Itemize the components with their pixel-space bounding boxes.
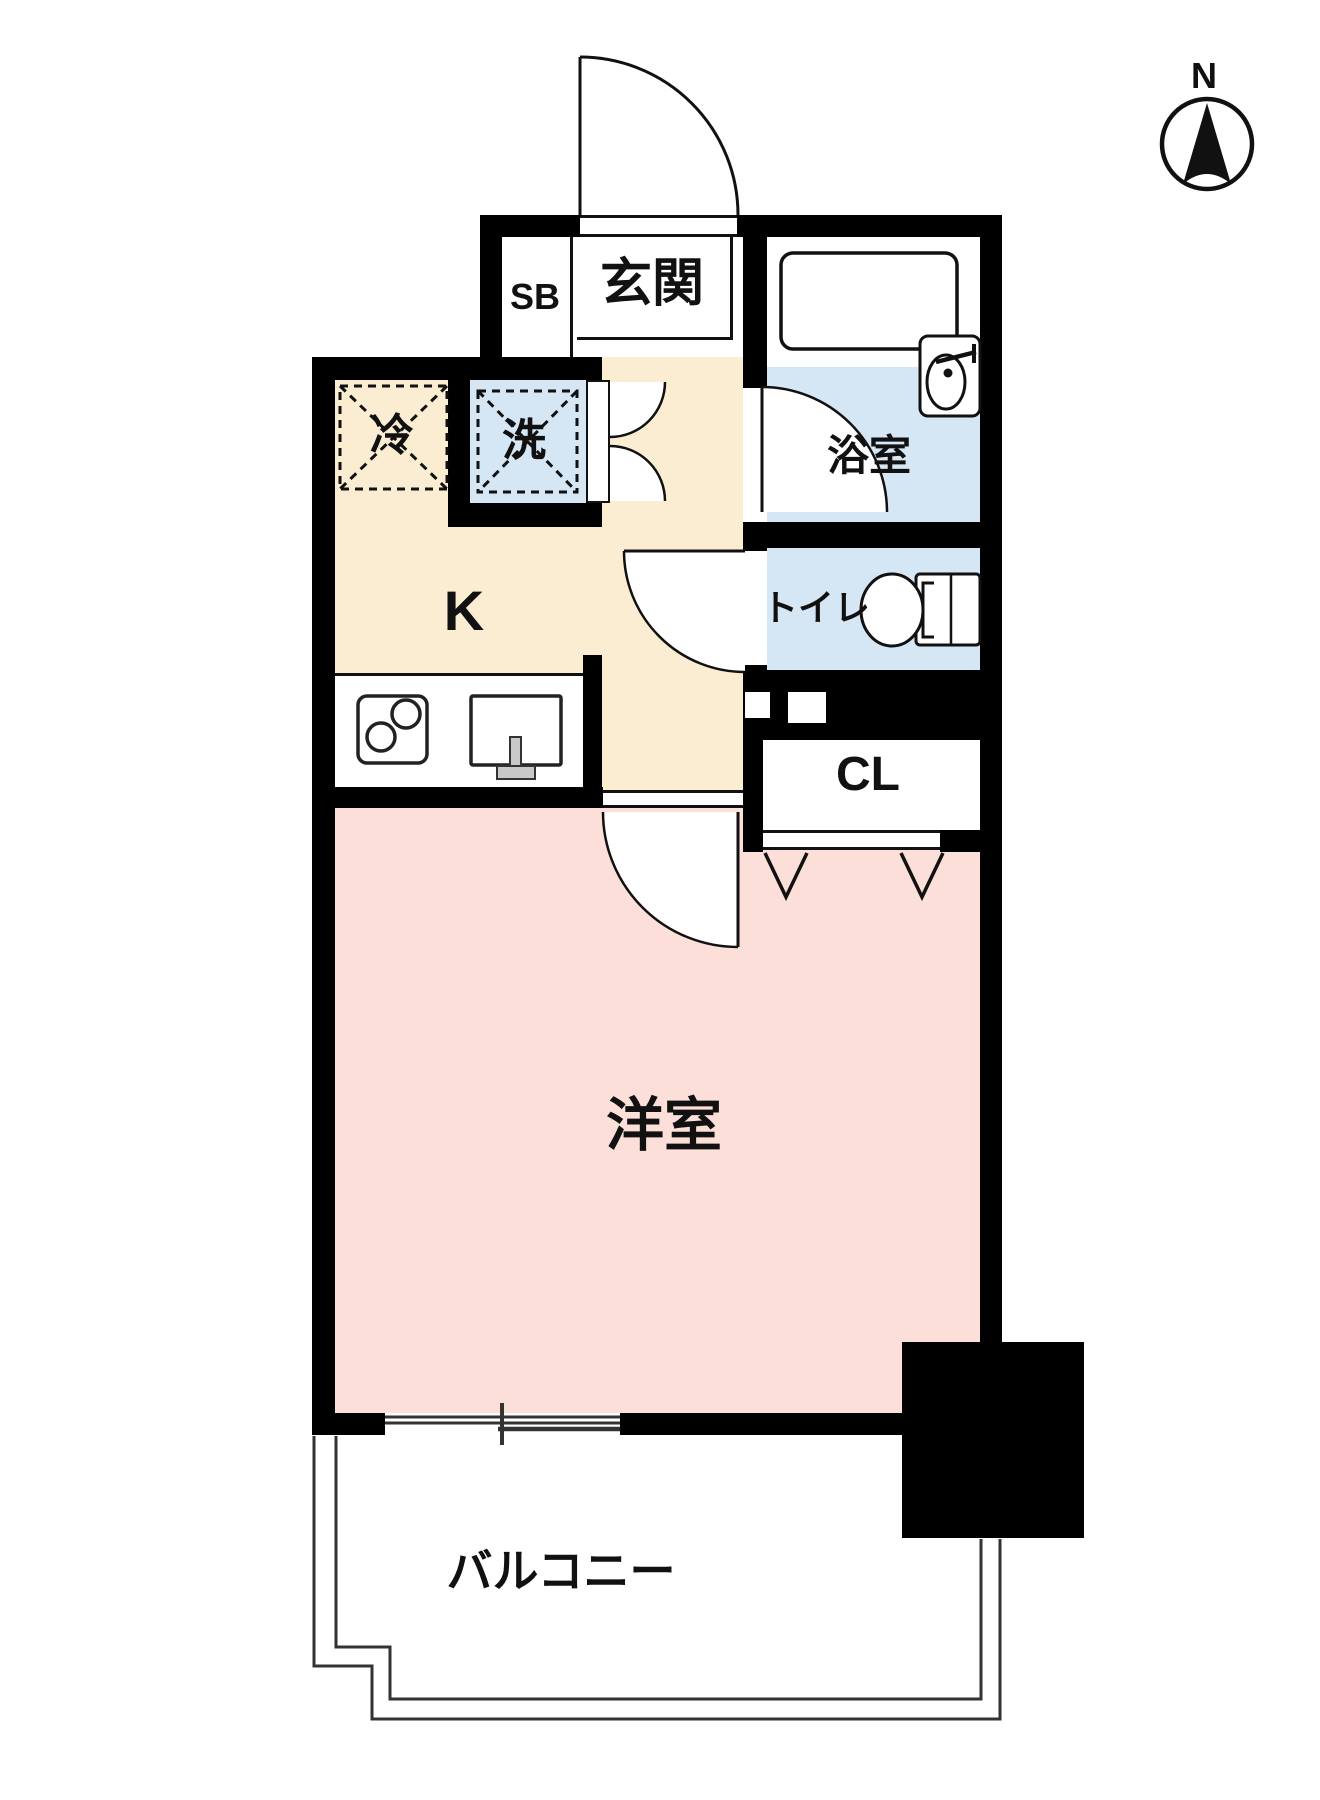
- bath-sink-basin: [927, 355, 965, 409]
- kitchen-label: K: [444, 583, 484, 639]
- shoe-box-label: SB: [510, 279, 560, 315]
- balcony-label: バルコニー: [446, 1548, 675, 1594]
- floor-plan: SB 玄関 浴室 トイレ CL K 冷 洗 洋室 バルコニー N: [0, 0, 1320, 1800]
- washer-label: 洗: [502, 419, 546, 463]
- refrigerator-label: 冷: [370, 414, 414, 458]
- toilet-door-fill: [624, 551, 745, 672]
- entrance-door-arc: [580, 57, 738, 215]
- balcony-window: [385, 1403, 620, 1445]
- compass-needle-icon: [1183, 103, 1231, 184]
- closet-door-v-1: [765, 853, 807, 897]
- compass-north-label: N: [1191, 58, 1217, 94]
- closet-door-v-2: [901, 853, 943, 897]
- closet-label: CL: [836, 751, 900, 799]
- toilet-bowl: [861, 574, 923, 646]
- stove-burner-1: [367, 723, 395, 751]
- stove-burner-2: [392, 700, 420, 728]
- bathroom-label: 浴室: [827, 435, 911, 477]
- entrance-label: 玄関: [600, 258, 704, 310]
- toilet-label: トイレ: [762, 590, 870, 626]
- kitchen-faucet-base: [497, 766, 535, 779]
- toilet-tank: [916, 574, 980, 645]
- western-room-label: 洋室: [606, 1097, 722, 1155]
- bath-faucet-dot: [944, 369, 953, 378]
- room-door-fill: [603, 812, 738, 947]
